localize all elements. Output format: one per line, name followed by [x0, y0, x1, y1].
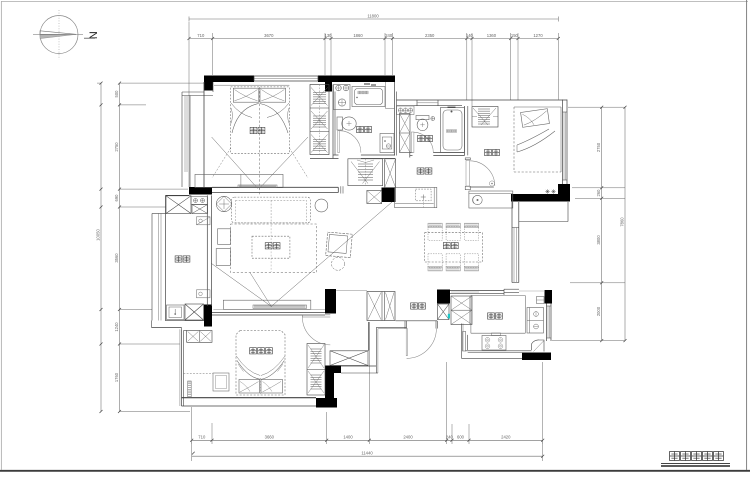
- svg-text:240: 240: [385, 33, 393, 38]
- svg-text:1240: 1240: [114, 322, 119, 332]
- svg-text:11800: 11800: [367, 14, 379, 19]
- svg-text:690: 690: [114, 194, 119, 202]
- svg-text:11440: 11440: [361, 451, 373, 456]
- svg-text:150: 150: [511, 33, 519, 38]
- svg-text:2350: 2350: [425, 33, 435, 38]
- svg-text:710: 710: [197, 33, 205, 38]
- svg-text:710: 710: [198, 435, 206, 440]
- svg-text:2750: 2750: [114, 142, 119, 152]
- svg-text:2400: 2400: [403, 435, 413, 440]
- svg-text:600: 600: [457, 435, 465, 440]
- svg-text:2750: 2750: [596, 142, 601, 152]
- svg-text:3670: 3670: [264, 33, 274, 38]
- svg-text:500: 500: [114, 90, 119, 98]
- svg-text:2000: 2000: [596, 306, 601, 316]
- svg-text:1760: 1760: [114, 372, 119, 382]
- svg-text:1860: 1860: [353, 33, 363, 38]
- svg-text:1270: 1270: [533, 33, 543, 38]
- svg-text:7860: 7860: [619, 217, 624, 227]
- svg-text:10050: 10050: [95, 229, 100, 241]
- svg-text:2420: 2420: [501, 435, 511, 440]
- svg-text:260: 260: [596, 189, 601, 197]
- svg-text:1360: 1360: [487, 33, 497, 38]
- svg-text:3660: 3660: [265, 435, 275, 440]
- svg-text:1400: 1400: [343, 435, 353, 440]
- svg-text:3800: 3800: [596, 235, 601, 245]
- svg-text:3560: 3560: [114, 253, 119, 263]
